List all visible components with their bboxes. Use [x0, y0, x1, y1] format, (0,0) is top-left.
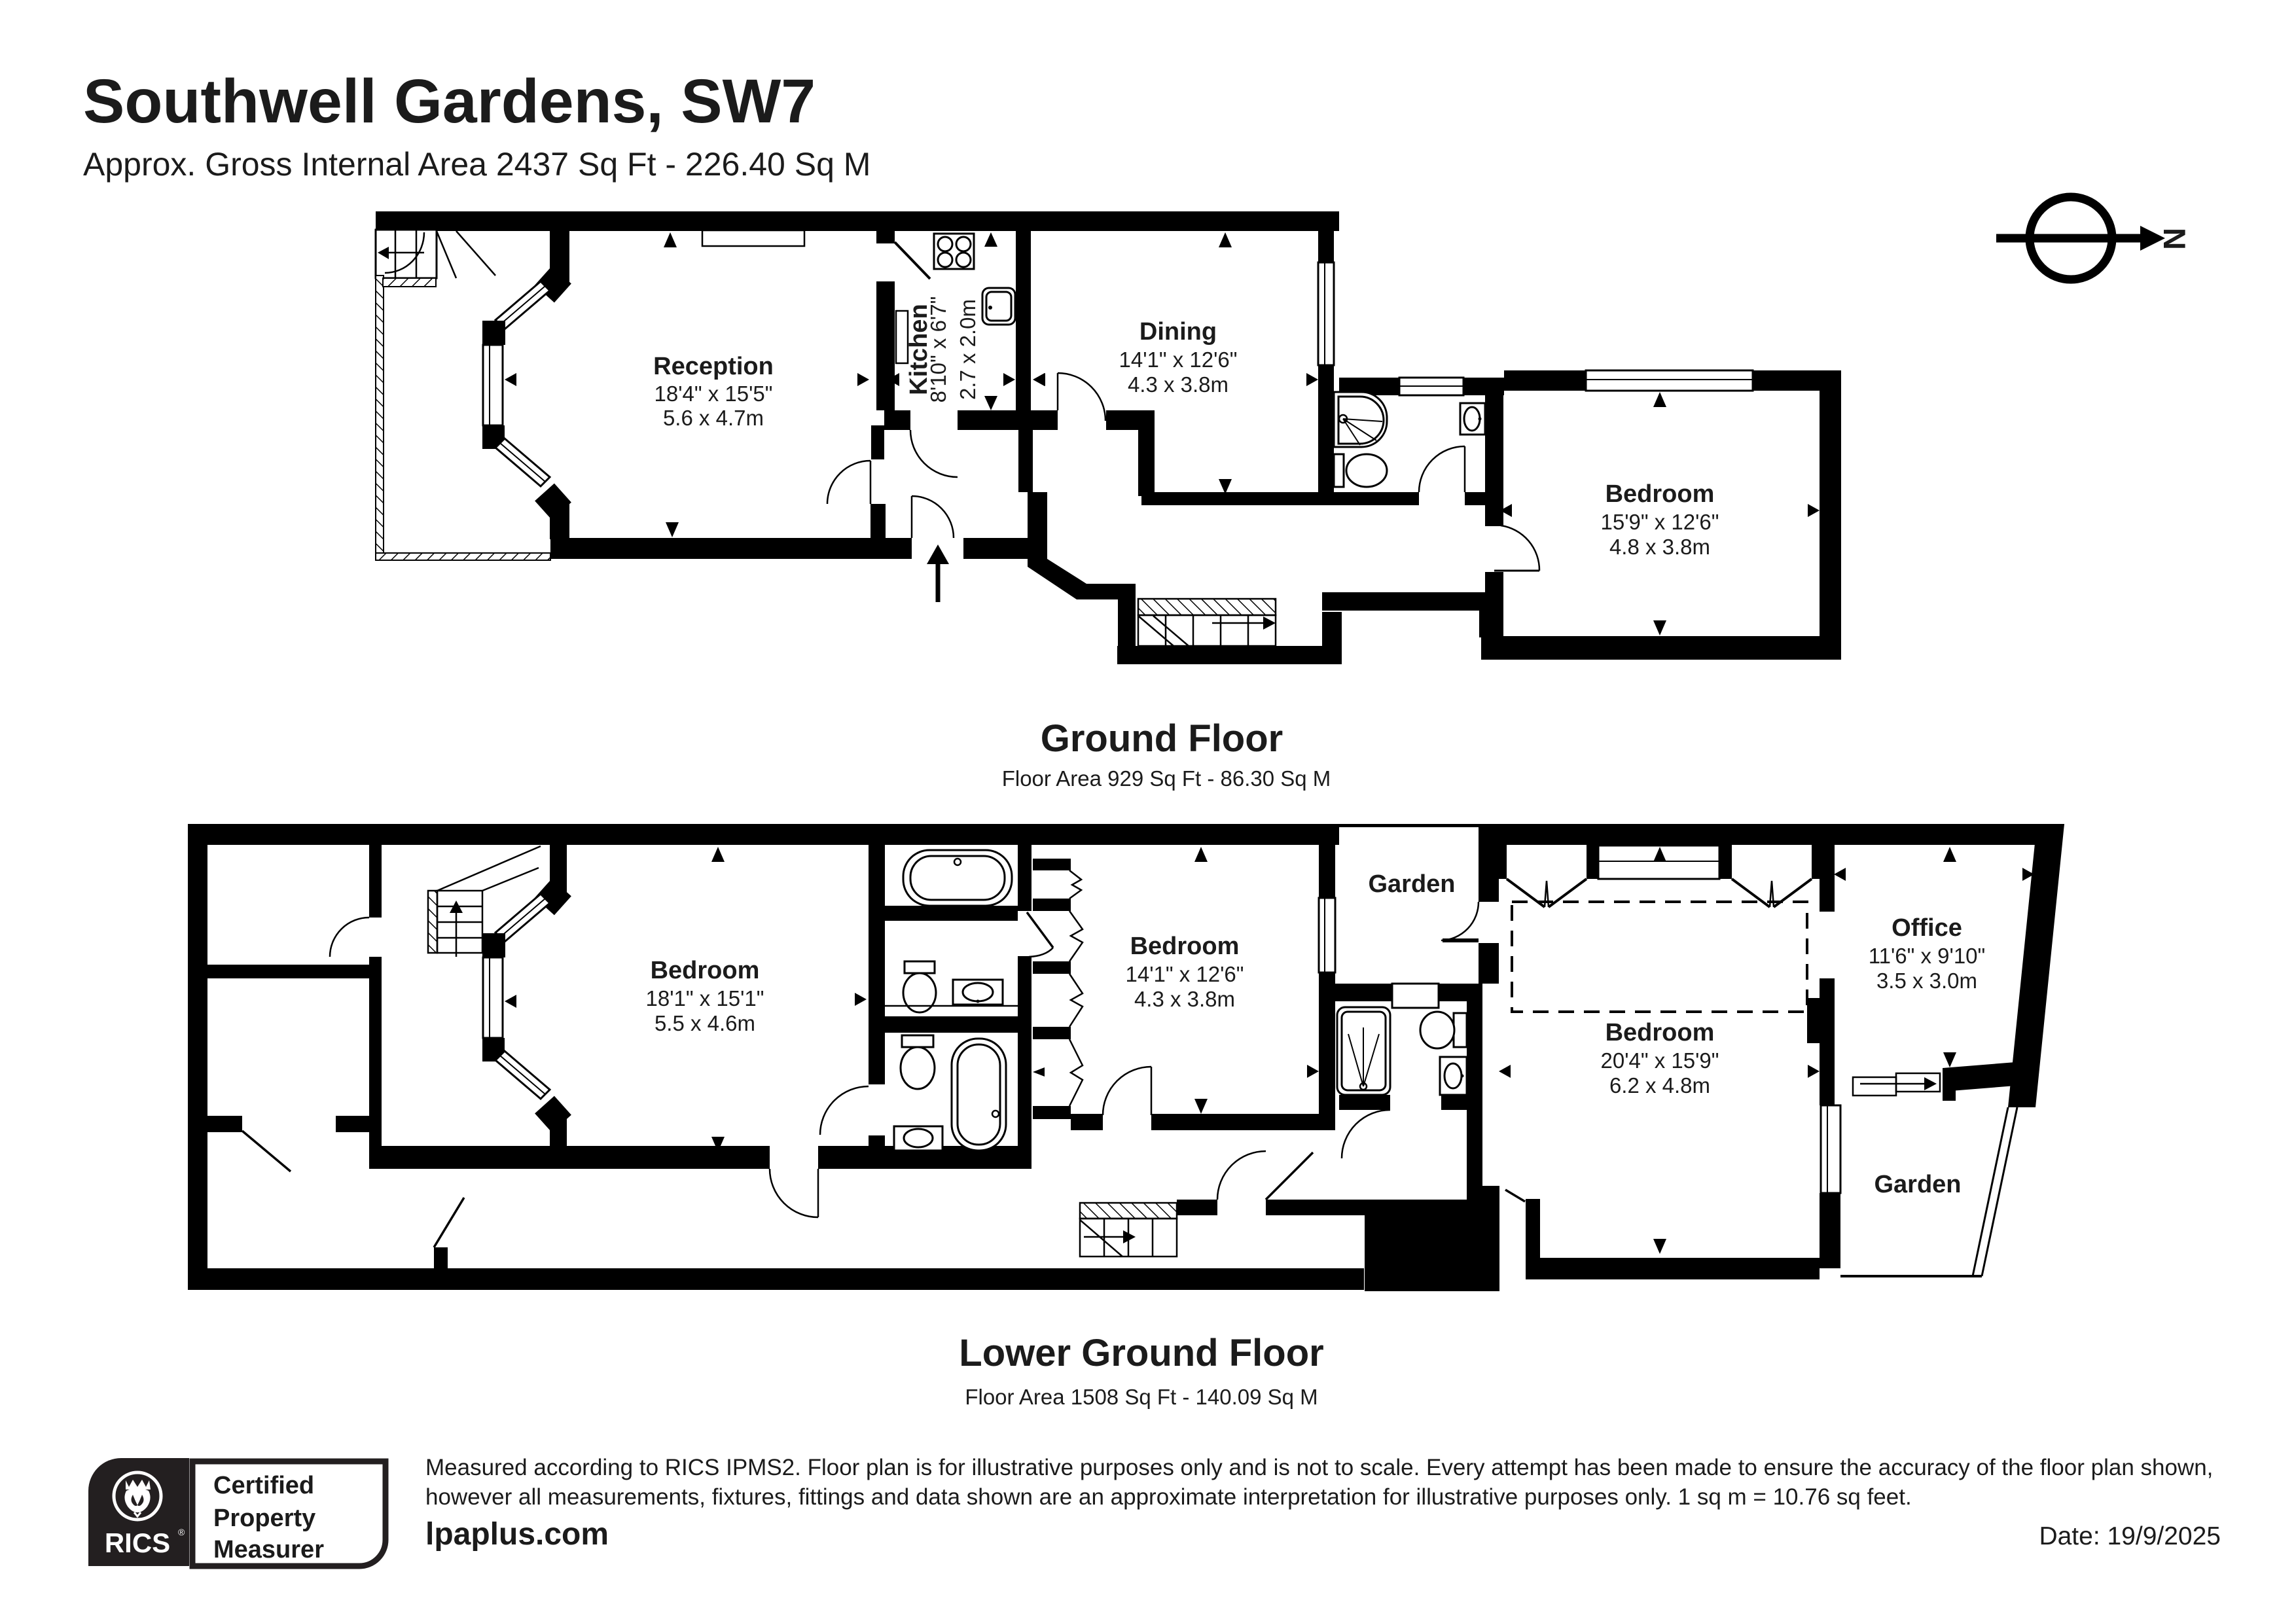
svg-text:Bedroom: Bedroom [1605, 1019, 1715, 1046]
svg-text:N: N [2157, 228, 2192, 250]
svg-text:Floor Area 1508 Sq Ft - 140.09: Floor Area 1508 Sq Ft - 140.09 Sq M [965, 1385, 1318, 1409]
svg-text:14'1" x 12'6": 14'1" x 12'6" [1119, 348, 1238, 372]
svg-text:Measurer: Measurer [213, 1536, 324, 1563]
svg-text:2.7 x 2.0m: 2.7 x 2.0m [956, 299, 980, 400]
svg-text:Lower Ground Floor: Lower Ground Floor [959, 1332, 1323, 1374]
svg-text:20'4" x 15'9": 20'4" x 15'9" [1601, 1048, 1719, 1073]
svg-text:Garden: Garden [1368, 870, 1455, 898]
svg-text:Bedroom: Bedroom [1130, 933, 1240, 960]
svg-text:4.3 x 3.8m: 4.3 x 3.8m [1134, 987, 1235, 1011]
svg-text:Garden: Garden [1874, 1171, 1961, 1198]
svg-text:Bedroom: Bedroom [1605, 480, 1715, 508]
svg-text:Property: Property [213, 1505, 315, 1532]
svg-text:5.6 x 4.7m: 5.6 x 4.7m [663, 406, 764, 430]
svg-text:Ground Floor: Ground Floor [1041, 717, 1283, 760]
svg-text:Office: Office [1892, 914, 1962, 942]
svg-text:Date: 19/9/2025: Date: 19/9/2025 [2039, 1522, 2221, 1550]
svg-text:6.2 x 4.8m: 6.2 x 4.8m [1609, 1073, 1710, 1097]
svg-text:Dining: Dining [1139, 318, 1217, 346]
svg-text:4.8 x 3.8m: 4.8 x 3.8m [1609, 535, 1710, 559]
svg-text:11'6" x 9'10": 11'6" x 9'10" [1869, 944, 1986, 968]
svg-text:3.5 x 3.0m: 3.5 x 3.0m [1876, 969, 1977, 993]
svg-text:Bedroom: Bedroom [651, 957, 760, 984]
svg-text:Certified: Certified [213, 1472, 314, 1499]
svg-text:however all measurements, fixt: however all measurements, fixtures, fitt… [425, 1484, 1912, 1510]
svg-text:Approx. Gross Internal Area 24: Approx. Gross Internal Area 2437 Sq Ft -… [83, 146, 870, 183]
svg-text:15'9" x 12'6": 15'9" x 12'6" [1601, 510, 1719, 534]
svg-text:4.3 x 3.8m: 4.3 x 3.8m [1128, 372, 1229, 397]
svg-text:Southwell Gardens, SW7: Southwell Gardens, SW7 [83, 67, 816, 136]
svg-text:RICS: RICS [105, 1527, 170, 1558]
svg-text:18'4" x 15'5": 18'4" x 15'5" [655, 382, 773, 406]
svg-text:14'1" x 12'6": 14'1" x 12'6" [1126, 962, 1244, 986]
svg-text:lpaplus.com: lpaplus.com [425, 1517, 609, 1552]
svg-text:®: ® [178, 1527, 185, 1537]
svg-text:Reception: Reception [653, 353, 774, 380]
svg-text:18'1" x 15'1": 18'1" x 15'1" [646, 986, 764, 1010]
svg-text:8'10" x 6'7": 8'10" x 6'7" [926, 296, 950, 403]
svg-text:5.5 x 4.6m: 5.5 x 4.6m [655, 1011, 755, 1035]
svg-text:Measured according to RICS IPM: Measured according to RICS IPMS2. Floor … [425, 1455, 2213, 1480]
svg-text:Floor Area 929 Sq Ft - 86.30 S: Floor Area 929 Sq Ft - 86.30 Sq M [1002, 766, 1331, 791]
